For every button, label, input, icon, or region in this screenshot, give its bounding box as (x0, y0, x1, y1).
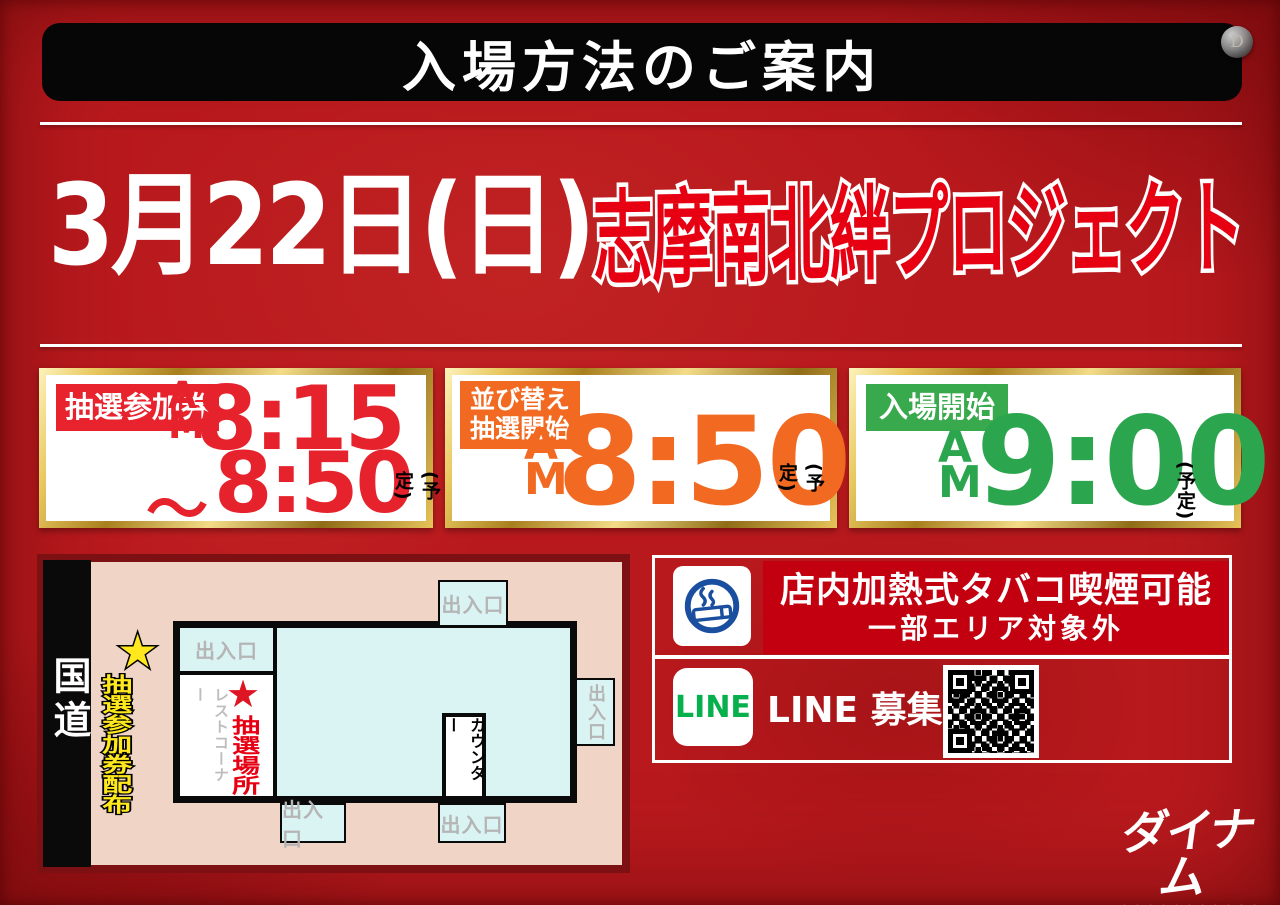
dynam-logo: ダイナム (1112, 808, 1258, 905)
entrance-label: 出入口 (195, 635, 258, 664)
ticket-time-end: 8:50 (214, 441, 411, 525)
building-outline: 出入口 レストコーナー ★ 抽選場所 カウンター (173, 621, 577, 803)
am-text: AM (168, 381, 192, 440)
floor-map: 国道 ★ 抽選参加券配布 出入口 レストコーナー ★ 抽選場所 カウンター 出入… (37, 554, 630, 873)
entrance-inner-box: 出入口 (180, 628, 277, 675)
divider-top (40, 122, 1242, 125)
line-app-icon: LINE (673, 668, 753, 746)
entrance-top-box: 出入口 (438, 580, 508, 627)
poster: 入場方法のご案内 D 3月22日(日) 志摩南北絆プロジェクト 抽選参加券 AM… (0, 0, 1280, 905)
entrance-label: 出入口 (282, 794, 344, 852)
entrance-bottom-box-2: 出入口 (438, 803, 506, 843)
smoking-info-band: 店内加熱式タバコ喫煙可能 一部エリア対象外 (763, 561, 1229, 654)
line-logo-text: LINE (675, 690, 751, 725)
divider-middle (40, 344, 1242, 347)
counter-label: カウンター (440, 717, 488, 796)
header-title: 入場方法のご案内 (402, 23, 882, 102)
tilde: 〜 (146, 459, 208, 549)
open-time: 9:00 (976, 401, 1267, 523)
pin-letter: D (1230, 32, 1244, 52)
entrance-label: 出入口 (441, 809, 504, 838)
panel-divider (655, 655, 1229, 659)
smoking-icon (679, 573, 745, 639)
red-star-icon: ★ (226, 675, 260, 713)
note-yotei: (予定) (1172, 461, 1199, 520)
heated-tobacco-icon (673, 566, 751, 646)
schedule-box-open: 入場開始 AM 9:00 (予定) (849, 368, 1241, 528)
note-yotei: (予定) (774, 463, 828, 521)
entrance-label: 出入口 (442, 589, 505, 618)
qr-finder-icon (1010, 670, 1034, 694)
qr-code (943, 665, 1039, 758)
entrance-bottom-box-1: 出入口 (280, 803, 346, 843)
entrance-label: 出入口 (582, 684, 608, 741)
schedule-box-ticket: 抽選参加券 AM 8:15 〜 8:50 (予定) (39, 368, 433, 528)
yellow-star-icon: ★ (117, 628, 158, 674)
note-yotei: (予定) (390, 471, 444, 521)
smoking-title: 店内加熱式タバコ喫煙可能 (780, 570, 1212, 612)
magnet-pin-icon: D (1221, 26, 1253, 58)
counter-box: カウンター (442, 713, 486, 796)
header-banner: 入場方法のご案内 (42, 23, 1242, 101)
lottery-place-label: 抽選場所 (230, 715, 258, 795)
brand-name: ダイナム (1105, 805, 1265, 902)
smoking-subtitle: 一部エリア対象外 (868, 612, 1124, 646)
road-label: 国道 (46, 656, 88, 744)
am-text: AM (524, 427, 553, 497)
qr-finder-icon (948, 729, 972, 753)
ticket-distribution-label: 抽選参加券配布 (100, 674, 130, 814)
road-strip: 国道 (43, 560, 91, 867)
rest-corner-room: レストコーナー ★ 抽選場所 (180, 675, 277, 796)
am-text: AM (938, 430, 967, 500)
qr-finder-icon (948, 670, 972, 694)
info-panel: 店内加熱式タバコ喫煙可能 一部エリア対象外 LINE LINE 募集▶ (652, 555, 1232, 763)
event-date: 3月22日(日) (48, 170, 592, 282)
entrance-right-box: 出入口 (575, 678, 615, 746)
event-name: 志摩南北絆プロジェクト (593, 178, 1244, 292)
schedule-box-lottery: 並び替え抽選開始 AM 8:50 (予定) (445, 368, 837, 528)
